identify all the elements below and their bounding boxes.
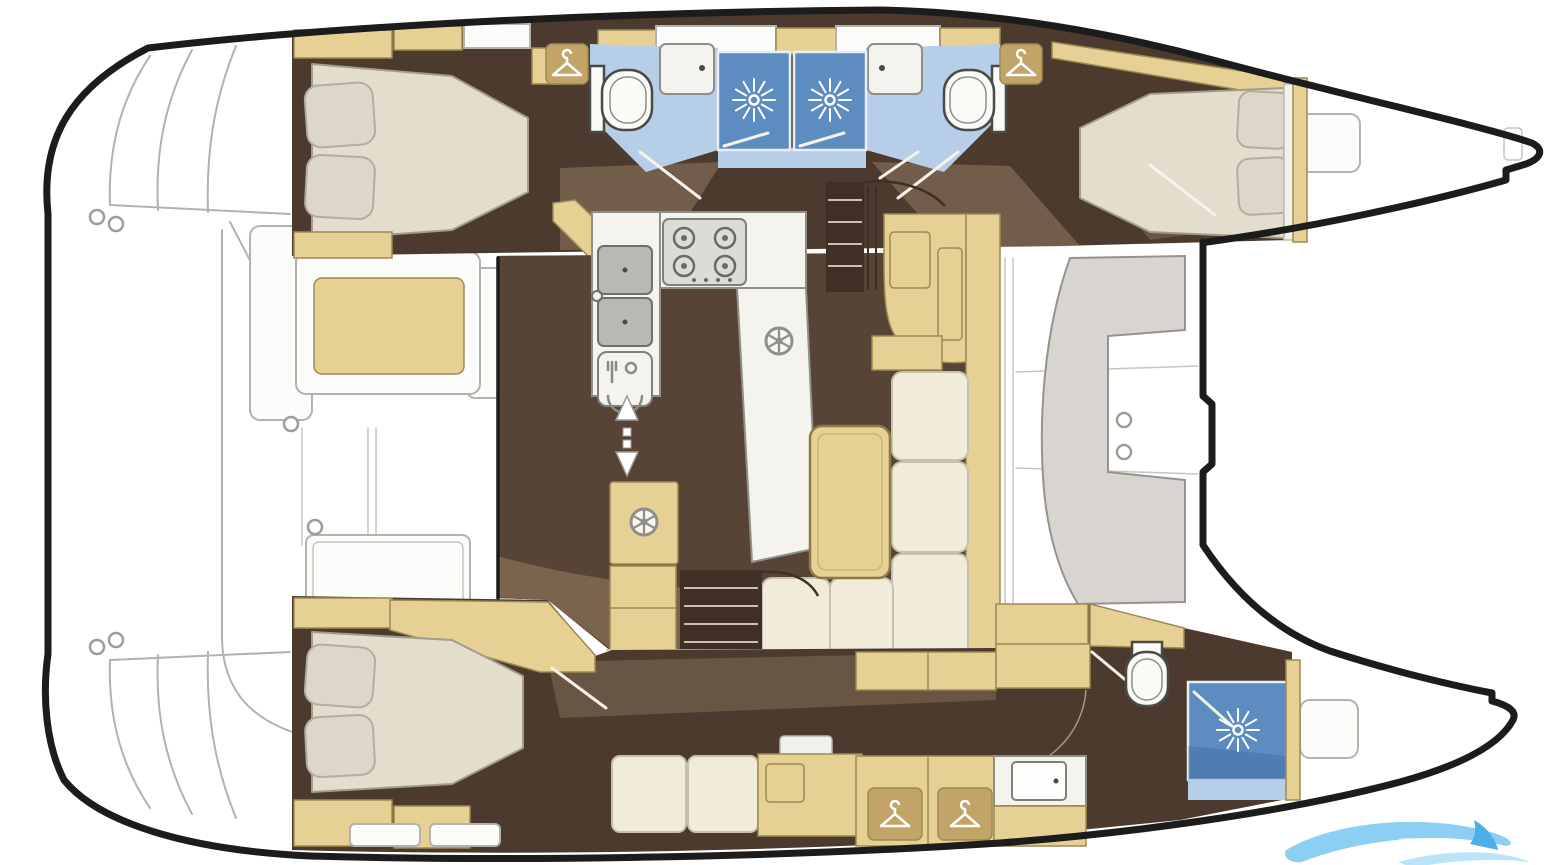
- cup-holder-icon: [1117, 445, 1131, 459]
- deck-ring-icon: [90, 210, 104, 224]
- shower-stall: [794, 52, 866, 150]
- pillow: [1237, 91, 1292, 150]
- vent-wheel-icon: [631, 509, 657, 535]
- sofa-cushion: [892, 554, 968, 662]
- deck-ring-icon: [308, 520, 322, 534]
- watermark-text-blur: [1396, 838, 1458, 853]
- hanging-locker: [1000, 44, 1042, 84]
- floor-plan-drawing: [0, 0, 1560, 865]
- deck-ring-icon: [284, 417, 298, 431]
- pillow: [304, 714, 375, 777]
- pillow: [304, 154, 375, 219]
- pillow: [304, 644, 376, 709]
- cabinet: [996, 644, 1090, 688]
- upper-cabinet: [856, 652, 996, 690]
- sink-icon: [994, 756, 1086, 806]
- vent-wheel-icon: [766, 328, 792, 354]
- sofa-cushion: [892, 462, 968, 552]
- vanity-desk: [758, 754, 862, 836]
- sofa-cushion: [762, 578, 830, 660]
- toilet-icon: [590, 66, 652, 132]
- sink-icon: [868, 44, 922, 94]
- cabinet: [776, 28, 836, 54]
- cockpit-bench-cushion: [314, 278, 464, 374]
- pillow: [304, 82, 376, 149]
- cabinet: [996, 604, 1088, 644]
- port-transom-steps: [110, 46, 290, 214]
- shower-stall: [718, 52, 790, 150]
- bulkhead: [1286, 660, 1300, 800]
- shelf: [464, 24, 530, 48]
- deck-ring-icon: [109, 633, 123, 647]
- bulkhead: [1293, 78, 1307, 242]
- cup-holder-icon: [1117, 413, 1131, 427]
- pillow: [1237, 157, 1292, 216]
- salon-forward-cabinet-wall: [966, 214, 1000, 694]
- seat-step: [350, 824, 420, 846]
- cabinet: [294, 232, 392, 258]
- foredeck-lounge-seat: [1042, 256, 1185, 604]
- hanging-locker: [546, 44, 588, 84]
- stove-icon: [663, 219, 746, 285]
- sofa-cushion: [830, 578, 893, 660]
- deck-ring-icon: [109, 217, 123, 231]
- settee-cushion: [688, 756, 758, 832]
- seat-step: [430, 824, 500, 846]
- catamaran-floor-plan: [0, 0, 1560, 865]
- sink-icon: [660, 44, 714, 94]
- cabinet: [394, 26, 462, 50]
- deck-hatch: [1300, 700, 1358, 758]
- wave-watermark-icon: [1285, 820, 1530, 865]
- deck-ring-icon: [90, 640, 104, 654]
- side-table: [872, 336, 942, 370]
- settee-cushion: [612, 756, 686, 832]
- toilet-icon: [1126, 642, 1168, 706]
- sofa-cushion: [892, 372, 968, 460]
- starboard-transom-steps: [110, 652, 290, 818]
- wardrobes: [856, 756, 998, 846]
- toilet-icon: [944, 66, 1006, 132]
- deck-hatch: [1300, 114, 1360, 172]
- shower-stall: [1188, 682, 1288, 800]
- salon-table: [810, 426, 890, 578]
- cabinet: [294, 598, 392, 628]
